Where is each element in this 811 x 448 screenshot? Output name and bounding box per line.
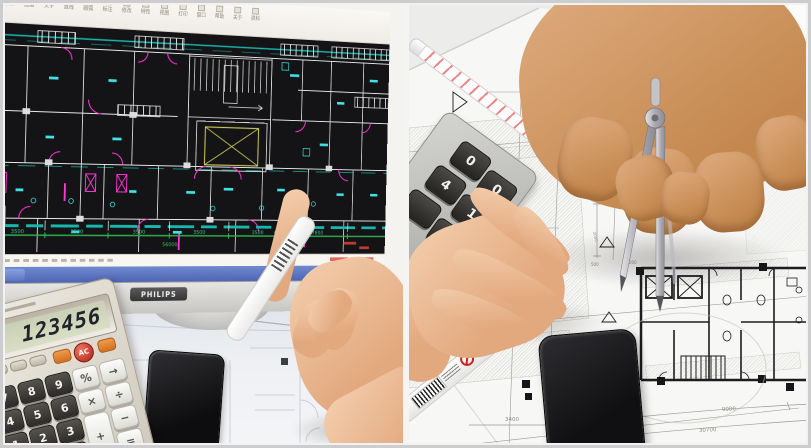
toolbar-item[interactable]: 文字	[43, 0, 55, 25]
dim-label: 3500	[193, 230, 206, 236]
toolbar-label: 修改	[122, 8, 132, 14]
dim-9000: 9000	[722, 406, 737, 413]
toolbar-label: 打印	[178, 12, 188, 18]
toolbar-label: 窗口	[197, 13, 207, 19]
philips-logo: PHILIPS	[130, 287, 187, 301]
dim-30700: 30700	[699, 427, 717, 434]
toolbar-label: 关于	[233, 15, 242, 21]
key-2: 2	[28, 424, 59, 448]
toolbar-item[interactable]: 窗口	[196, 4, 207, 33]
dim-label: 3500	[70, 229, 84, 235]
toolbar-label: 资料	[251, 16, 260, 22]
toolbar-item[interactable]: 图层	[23, 0, 35, 23]
toolbar-icon	[216, 5, 223, 12]
orange-button	[96, 337, 117, 354]
photo-collage: 默认 图层 文字 直线 圆弧 标注 修改 特性 视图 打印 窗口 帮助 关于 资…	[0, 0, 811, 448]
toolbar-item[interactable]: 打印	[177, 3, 188, 32]
memory-button	[0, 363, 9, 377]
toolbar-icon	[234, 7, 241, 14]
toolbar-icon	[198, 4, 205, 11]
toolbar-item[interactable]: 特性	[140, 1, 152, 30]
toolbar-label: 帮助	[215, 14, 224, 20]
start-button[interactable]	[0, 269, 25, 281]
memory-button	[29, 354, 48, 368]
left-photo-monitor-scene: 默认 图层 文字 直线 圆弧 标注 修改 特性 视图 打印 窗口 帮助 关于 资…	[0, 0, 403, 448]
toolbar-label: 默认	[4, 1, 15, 7]
toolbar-label: 圆弧	[83, 6, 93, 12]
toolbar-label: 文字	[44, 3, 54, 9]
dim-label: 3500	[252, 230, 264, 236]
toolbar-item[interactable]: 直线	[63, 0, 75, 26]
toolbar-label: 标注	[103, 7, 113, 13]
cad-floor-plan-screen: 3500 3500 3500 3500 3500 7800 56000	[0, 22, 390, 254]
toolbar-item[interactable]: 默认	[3, 0, 15, 22]
toolbar-icon	[252, 8, 259, 15]
toolbar-item[interactable]: 资料	[250, 8, 261, 37]
key-equals: =	[115, 427, 146, 448]
toolbar-icon	[65, 0, 73, 3]
toolbar-item[interactable]: 视图	[159, 2, 170, 31]
command-text	[0, 259, 117, 262]
toolbar-label: 直线	[64, 5, 74, 11]
memory-button	[9, 359, 28, 373]
smartphone	[143, 349, 226, 448]
dim-label: 3500	[11, 229, 25, 235]
dim-label: 3500	[133, 230, 146, 236]
dim-total-label: 56000	[162, 242, 178, 248]
toolbar-item[interactable]: 圆弧	[82, 0, 94, 27]
toolbar-icon	[142, 1, 149, 8]
right-photo-blueprint-scene: 9000 30700 3400 2000 500 200 0 0 4 1	[409, 0, 811, 448]
smartphone	[537, 328, 646, 448]
compass-handle	[651, 78, 660, 106]
toolbar-item[interactable]: 标注	[102, 0, 114, 28]
ac-label: AC	[78, 347, 90, 357]
compass-needle-tip	[620, 275, 626, 292]
toolbar-icon	[85, 0, 93, 4]
toolbar-icon	[104, 0, 111, 5]
toolbar-item[interactable]: 修改	[121, 0, 133, 29]
calculator-display-value: 123456	[20, 303, 103, 347]
toolbar-icon	[45, 0, 53, 2]
toolbar-label: 视图	[160, 11, 170, 17]
toolbar-icon	[161, 2, 168, 9]
brand-text: PHILIPS	[141, 290, 177, 299]
compass-hinge-screw	[652, 115, 659, 122]
toolbar-item[interactable]: 关于	[232, 6, 243, 35]
toolbar-label: 图层	[24, 2, 34, 8]
ce-button	[52, 348, 73, 365]
photo-divider	[403, 0, 409, 448]
toolbar-item[interactable]: 帮助	[214, 5, 225, 34]
compass-needle-tip	[656, 296, 664, 312]
ac-button: AC	[72, 340, 96, 364]
dim-3400: 3400	[505, 417, 519, 423]
toolbar-icon	[180, 3, 187, 10]
toolbar-icon	[123, 0, 130, 7]
toolbar-label: 特性	[141, 10, 151, 16]
toolbar-icon	[25, 0, 33, 1]
dim-label: 7800	[312, 231, 324, 237]
